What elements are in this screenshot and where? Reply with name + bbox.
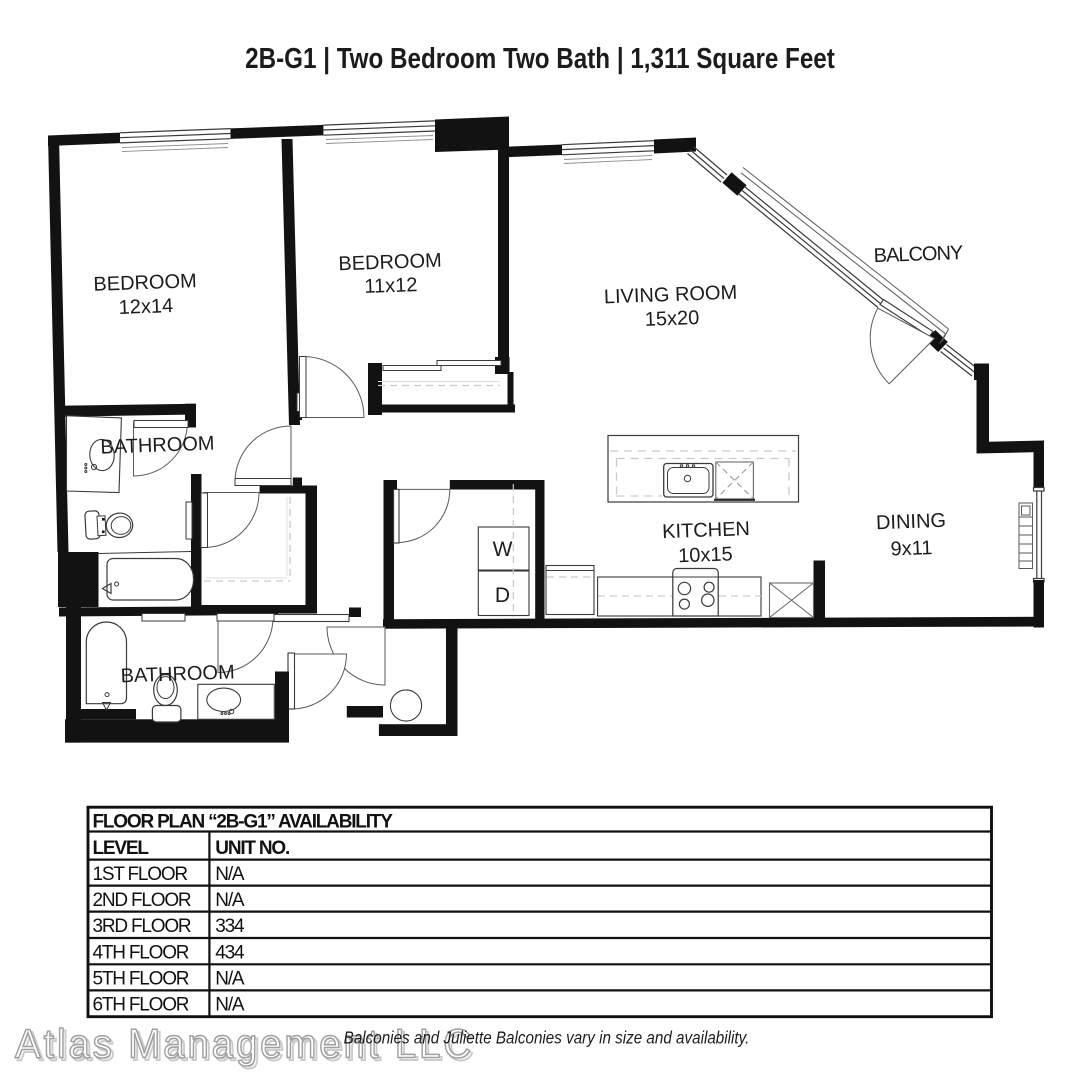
svg-text:BATHROOM: BATHROOM bbox=[120, 661, 235, 687]
svg-text:DINING: DINING bbox=[876, 510, 947, 534]
svg-text:Balconies and Juliette Balconi: Balconies and Juliette Balconies vary in… bbox=[344, 1029, 750, 1048]
svg-text:N/A: N/A bbox=[215, 969, 245, 990]
svg-text:5TH FLOOR: 5TH FLOOR bbox=[93, 969, 189, 990]
svg-text:BEDROOM: BEDROOM bbox=[338, 250, 442, 276]
svg-text:334: 334 bbox=[215, 916, 245, 937]
svg-text:D: D bbox=[495, 584, 510, 607]
svg-text:N/A: N/A bbox=[215, 890, 245, 911]
svg-text:UNIT NO.: UNIT NO. bbox=[215, 838, 289, 859]
svg-text:BEDROOM: BEDROOM bbox=[93, 270, 197, 296]
svg-text:4TH FLOOR: 4TH FLOOR bbox=[93, 942, 189, 963]
svg-text:2ND FLOOR: 2ND FLOOR bbox=[93, 890, 191, 911]
svg-text:BATHROOM: BATHROOM bbox=[100, 433, 215, 459]
svg-text:FLOOR PLAN “2B-G1” AVAILABILIT: FLOOR PLAN “2B-G1” AVAILABILITY bbox=[93, 812, 394, 833]
svg-text:6TH FLOOR: 6TH FLOOR bbox=[93, 995, 189, 1016]
svg-text:12x14: 12x14 bbox=[118, 295, 173, 319]
svg-text:BALCONY: BALCONY bbox=[873, 242, 963, 267]
svg-text:15x20: 15x20 bbox=[644, 307, 699, 331]
svg-text:9x11: 9x11 bbox=[890, 537, 933, 560]
svg-text:2B-G1 | Two Bedroom Two Bath |: 2B-G1 | Two Bedroom Two Bath | 1,311 Squ… bbox=[245, 42, 835, 75]
svg-text:LEVEL: LEVEL bbox=[93, 838, 150, 859]
svg-text:N/A: N/A bbox=[215, 995, 245, 1016]
svg-text:3RD FLOOR: 3RD FLOOR bbox=[93, 916, 191, 937]
svg-text:N/A: N/A bbox=[215, 864, 245, 885]
svg-text:1ST FLOOR: 1ST FLOOR bbox=[93, 864, 188, 885]
svg-text:W: W bbox=[493, 538, 513, 561]
svg-text:11x12: 11x12 bbox=[364, 274, 418, 298]
svg-text:434: 434 bbox=[215, 942, 245, 963]
svg-text:10x15: 10x15 bbox=[678, 543, 733, 567]
svg-text:LIVING ROOM: LIVING ROOM bbox=[604, 282, 738, 309]
svg-text:KITCHEN: KITCHEN bbox=[662, 518, 751, 543]
